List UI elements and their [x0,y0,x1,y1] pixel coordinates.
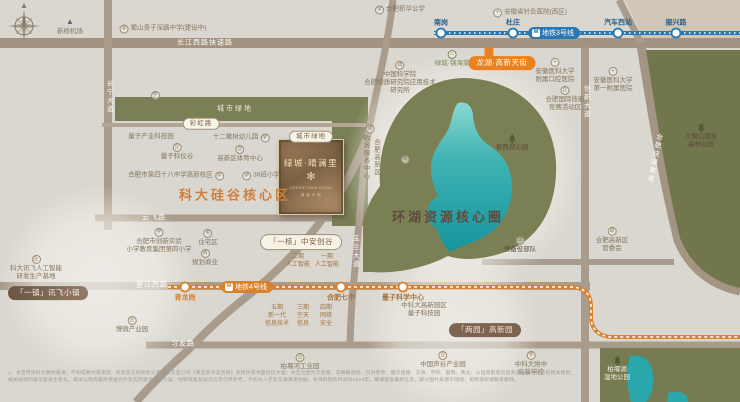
biz-icon: 企 [32,255,41,264]
school-icon: 学 [215,172,224,181]
house-icon: ⌂ [447,50,456,59]
poi-label: 管委会 [596,245,629,253]
poi-cas-institute: 政中国科学院合肥物质研究院应用技术研究所 [364,61,436,95]
gov-icon: 政 [396,61,405,70]
station-label-合肥七中: 合肥七中 [327,293,355,302]
tree-icon [508,134,517,143]
poi-label: 规划商业 [192,259,218,267]
plabel-text: 安全 [320,320,332,328]
poi-xingzhi-school: 学合肥蜀山行知学校 [129,91,181,109]
poi-gaoxin-sports-center: 企高新区体育中心 [217,145,263,163]
poi-shuxihu-park: 蜀西湖公园 [496,134,529,152]
poi-label: 柏堰湖 [604,366,630,374]
road-label-wangjiangxilu: 望江西路 [136,280,168,289]
plabel-text: 四期 [320,304,332,312]
poi-label: 安徽医科大学 [536,68,575,76]
disclaimer-line2: 相关规划内容可能发生变化，具体以政府最终批准文件及实际建设交付为准；地铁线路及站… [8,378,519,384]
plabel-text: 信息技术 [265,320,289,328]
vroad-text: 玉兰大道 [350,235,358,269]
gov-icon: 政 [516,236,525,245]
poi-label: 大蜀山国家 [685,133,718,141]
plabel-text: 空天 [297,312,309,320]
med-icon: + [609,67,618,76]
school-icon: 学 [527,351,536,360]
school-icon: 学 [242,172,251,181]
poi-label: 研发生产基地 [10,273,62,281]
poi-label: 柏堰河工业园 [281,363,320,371]
road-text: 长江西路快速路 [177,38,233,47]
metro3-badge: M地铁3号线 [528,27,580,39]
shop-icon: 商 [201,249,210,258]
badge-text: 「一镇」讯飞小镇 [16,288,80,298]
label-phase3-aerospace: 三期空天信息 [297,304,309,328]
area-label-huanhu: 环湖资源核心圈 [392,210,504,227]
road-text: 习友路 [171,339,195,348]
badge-text: 龙湖·高新天街 [477,58,528,68]
station-label-汽车西站: 汽车西站 [604,18,632,27]
gov-icon: 政 [608,227,617,236]
poi-label: 研究所 [364,87,436,95]
poi-label: 绿城·锦海棠 [435,60,470,68]
poi-label: 36班小学 [253,172,280,180]
poi-chuangxin-primary: 学合肥市创新实验小学教育集团第四小学 [127,228,192,254]
road-vlabel-changningdadao: 长宁大道 [104,80,112,114]
disc-text: 相关规划内容可能发生变化，具体以政府最终批准文件及实际建设交付为准；地铁线路及站… [8,378,519,384]
poi-label: 合肥新华公学 [386,6,425,14]
metro4-badge-text: 地铁4号线 [235,282,267,291]
metro-logo-icon: M [225,283,233,291]
school-icon: 学 [260,134,269,143]
plabel-text: 网络 [320,312,332,320]
poi-yubeiyi: 政预备役部队 [504,236,537,254]
poi-jineng-zone: 企合肥国际技能竞赛活动区 [546,86,585,112]
poi-gaoxin-guanweihui: 政合肥高新区管委会 [596,227,629,253]
station-label-振兴路: 振兴路 [666,18,687,27]
poi-label: 安徽省针灸医院(西区) [504,9,567,17]
poi-xinqiao-airport: ▲新桥机场 [57,18,83,36]
road-label-yunfeilu: 云飞路 [142,213,166,222]
poi-label: 预备役部队 [504,246,537,254]
poi-no48-middle-school: 合肥市第四十八中学高新校区学 [128,172,224,181]
disc-text: 1、本宣传资料为要约邀请，不构成要约或承诺，买卖双方的权利义务以双方签订的《商品… [8,371,576,377]
poi-label: 十二橡树幼儿园 [213,134,259,142]
badge-text: 「一核」中安创谷 [269,237,333,247]
poi-label: 砂之船奥莱 [389,165,422,173]
biz-icon: 企 [173,143,182,152]
map-labels-layer: 长江西路快速路云飞路望江西路习友路彩虹路长宁大道玉兰大道创新大道合肥绕城高速城市… [0,0,740,402]
vroad-text: 合肥绕城高速 [644,132,663,184]
green-label-chengshilvdi: 城市绿地 [217,104,253,113]
plabel-text: 人工智能 [286,261,310,269]
road-label-xiyoulu: 习友路 [171,339,195,348]
poi-zhengwu-center: 政合肥高新区政务服务中心 [361,125,380,180]
plabel-text: 信息 [297,320,309,328]
plabel-text: 一期 [315,253,339,261]
poi-36class-primary: 学36班小学 [242,172,280,181]
poi-liangzi-keyigu: 企量子科仪谷 [161,143,194,161]
poi-xinhua-gongxue: 学合肥新华公学 [375,6,425,15]
plabel-text: 二期 [286,253,310,261]
poi-label: 蜀西湖公园 [496,144,529,152]
poi-label: 政务服务中心 [361,135,369,180]
poi-baiyanhu-wetland: 柏堰湖湿地公园 [604,356,630,382]
poi-label: 附属口腔医院 [536,76,575,84]
station-label-青龙岗: 青龙岗 [175,293,196,302]
poi-label: 博微产业园 [116,326,149,334]
poi-twelve-oaks-kindergarten: 十二橡树幼儿园学 [213,134,270,143]
poi-shenggu-industry: 企中国声谷产业园 [420,351,466,369]
poi-dashushan-forest: 大蜀山国家森林公园 [685,123,718,149]
area-label-kedaguigu: 科大硅谷核心区 [179,188,291,205]
poi-guizishenlu-school: 学蜀山贵子深路中学(建设中) [120,25,207,34]
poi-bowei-industry: 企博微产业园 [116,316,149,334]
poi-label: 第一附属医院 [594,85,633,93]
plabel-text: 三期 [297,304,309,312]
area-text: 环湖资源核心圈 [392,210,504,227]
label-phase1-ai: 一期人工智能 [315,253,339,269]
med-icon: + [551,58,560,67]
shop-icon: 商 [401,155,410,164]
tree-icon [613,356,622,365]
location-map: 绿城·晴澜里 ✻ GREENTOWN CHINA 绿 城 中 国 长江西路快速路… [0,0,740,402]
home-icon: 宅 [204,229,213,238]
biz-icon: 企 [296,353,305,362]
poi-label: 高新区体育中心 [217,155,263,163]
biz-icon: 企 [561,86,570,95]
poi-baiyan-industrial: 企柏堰河工业园 [281,353,320,371]
station-label-杜庄: 杜庄 [506,18,520,27]
poi-label: 合肥市第四十八中学高新校区 [128,172,213,180]
badge-yihe-zhongan: 「一核」中安创谷 [260,234,342,250]
poi-label: 住宅区 [198,239,218,247]
badge-yizhen-xunfei: 「一镇」讯飞小镇 [8,286,88,300]
label-phase4-security: 四期网络安全 [320,304,332,328]
poi-label: 安徽医科大学 [594,77,633,85]
school-icon: 学 [155,228,164,237]
poi-label: 中科大附中 [515,361,548,369]
poi-label: 合肥蜀山行知学校 [129,101,181,109]
poi-liangzi-industry-park: 量子产业科技园 [128,133,174,141]
poi-label: 小学教育集团第四小学 [127,246,192,254]
school-icon: 学 [375,6,384,15]
poi-label: 合肥市创新实验 [127,238,192,246]
road-text: 云飞路 [142,213,166,222]
poi-shazhichuan-outlets: 商砂之船奥莱 [389,155,422,173]
poi-kouqiang-hospital: +安徽医科大学附属口腔医院 [536,58,575,84]
biz-icon: 企 [236,145,245,154]
poi-guihua-shangye: 商规划商业 [192,249,218,267]
metro4-badge: M地铁4号线 [221,281,273,293]
road-label-changjiangxilu: 长江西路快速路 [177,38,233,47]
school-icon: 学 [120,25,129,34]
poi-label: 竞赛活动区 [546,104,585,112]
poi-label: 中国声谷产业园 [420,361,466,369]
biz-icon: 企 [128,316,137,325]
tree-icon [697,123,706,132]
poi-anyi-first-hospital: +安徽医科大学第一附属医院 [594,67,633,93]
poi-label: 合肥高新区 [596,237,629,245]
road-text: 望江西路 [136,280,168,289]
road-vlabel-yulandadao: 玉兰大道 [350,235,358,269]
area-text: 科大硅谷核心区 [179,188,291,205]
poi-zhenjiu-hospital: +安徽省针灸医院(西区) [493,9,567,18]
poi-label: 合肥高新区 [371,135,379,180]
poi-label: 森林公园 [685,141,718,149]
station-label-南岗: 南岗 [434,18,448,27]
school-icon: 学 [151,91,160,100]
badge-text: 「两园」高新园 [457,325,513,335]
label-phase5-it: 五期新一代信息技术 [265,304,289,328]
poi-label: 合肥国际技能 [546,96,585,104]
poi-label: 中科大高新园区 [401,302,447,310]
pill-text: 彩虹路 [190,120,213,128]
pill-text: 城市绿地 [296,133,326,141]
poi-label: 蜀山贵子深路中学(建设中) [131,25,207,33]
poi-label: 科大讯飞人工智能 [10,265,62,273]
med-icon: + [493,9,502,18]
badge-longhu-tianjie: 龙湖·高新天街 [469,56,536,70]
gov-icon: 政 [366,125,375,134]
poi-zhongkeda-liangzi: 中科大高新园区量子科技园 [401,302,447,318]
poi-label: 量子产业科技园 [128,133,174,141]
label-phase2-ai: 二期人工智能 [286,253,310,269]
glabel-text: 城市绿地 [217,104,253,113]
poi-zhuzhaiqu: 宅住宅区 [198,229,218,247]
poi-lvcheng-jinhaitang: ⌂绿城·锦海棠 [435,50,470,68]
disclaimer-line1: 1、本宣传资料为要约邀请，不构成要约或承诺，买卖双方的权利义务以双方签订的《商品… [8,371,576,377]
poi-label: 量子科技园 [401,310,447,318]
poi-iflytek-base: 企科大讯飞人工智能研发生产基地 [10,255,62,281]
plabel-text: 五期 [265,304,289,312]
poi-label: 新桥机场 [57,28,83,36]
road-vlabel-raochenggaosu: 合肥绕城高速 [644,132,663,184]
pill-chengshilvdi-card: 城市绿地 [289,131,333,143]
poi-label: 中国科学院 [364,71,436,79]
plabel-text: 人工智能 [315,261,339,269]
road-pill-caihonglu: 彩虹路 [183,118,220,130]
poi-label: 量子科仪谷 [161,153,194,161]
plabel-text: 新一代 [265,312,289,320]
badge-liangyuan-gaoxin: 「两园」高新园 [449,323,521,337]
poi-label: 湿地公园 [604,374,630,382]
station-label-量子科学中心: 量子科学中心 [382,293,424,302]
biz-icon: 企 [439,351,448,360]
metro3-badge-text: 地铁3号线 [542,28,574,37]
vroad-text: 长宁大道 [104,80,112,114]
metro-logo-icon: M [532,29,540,37]
plane-icon: ▲ [66,18,75,27]
